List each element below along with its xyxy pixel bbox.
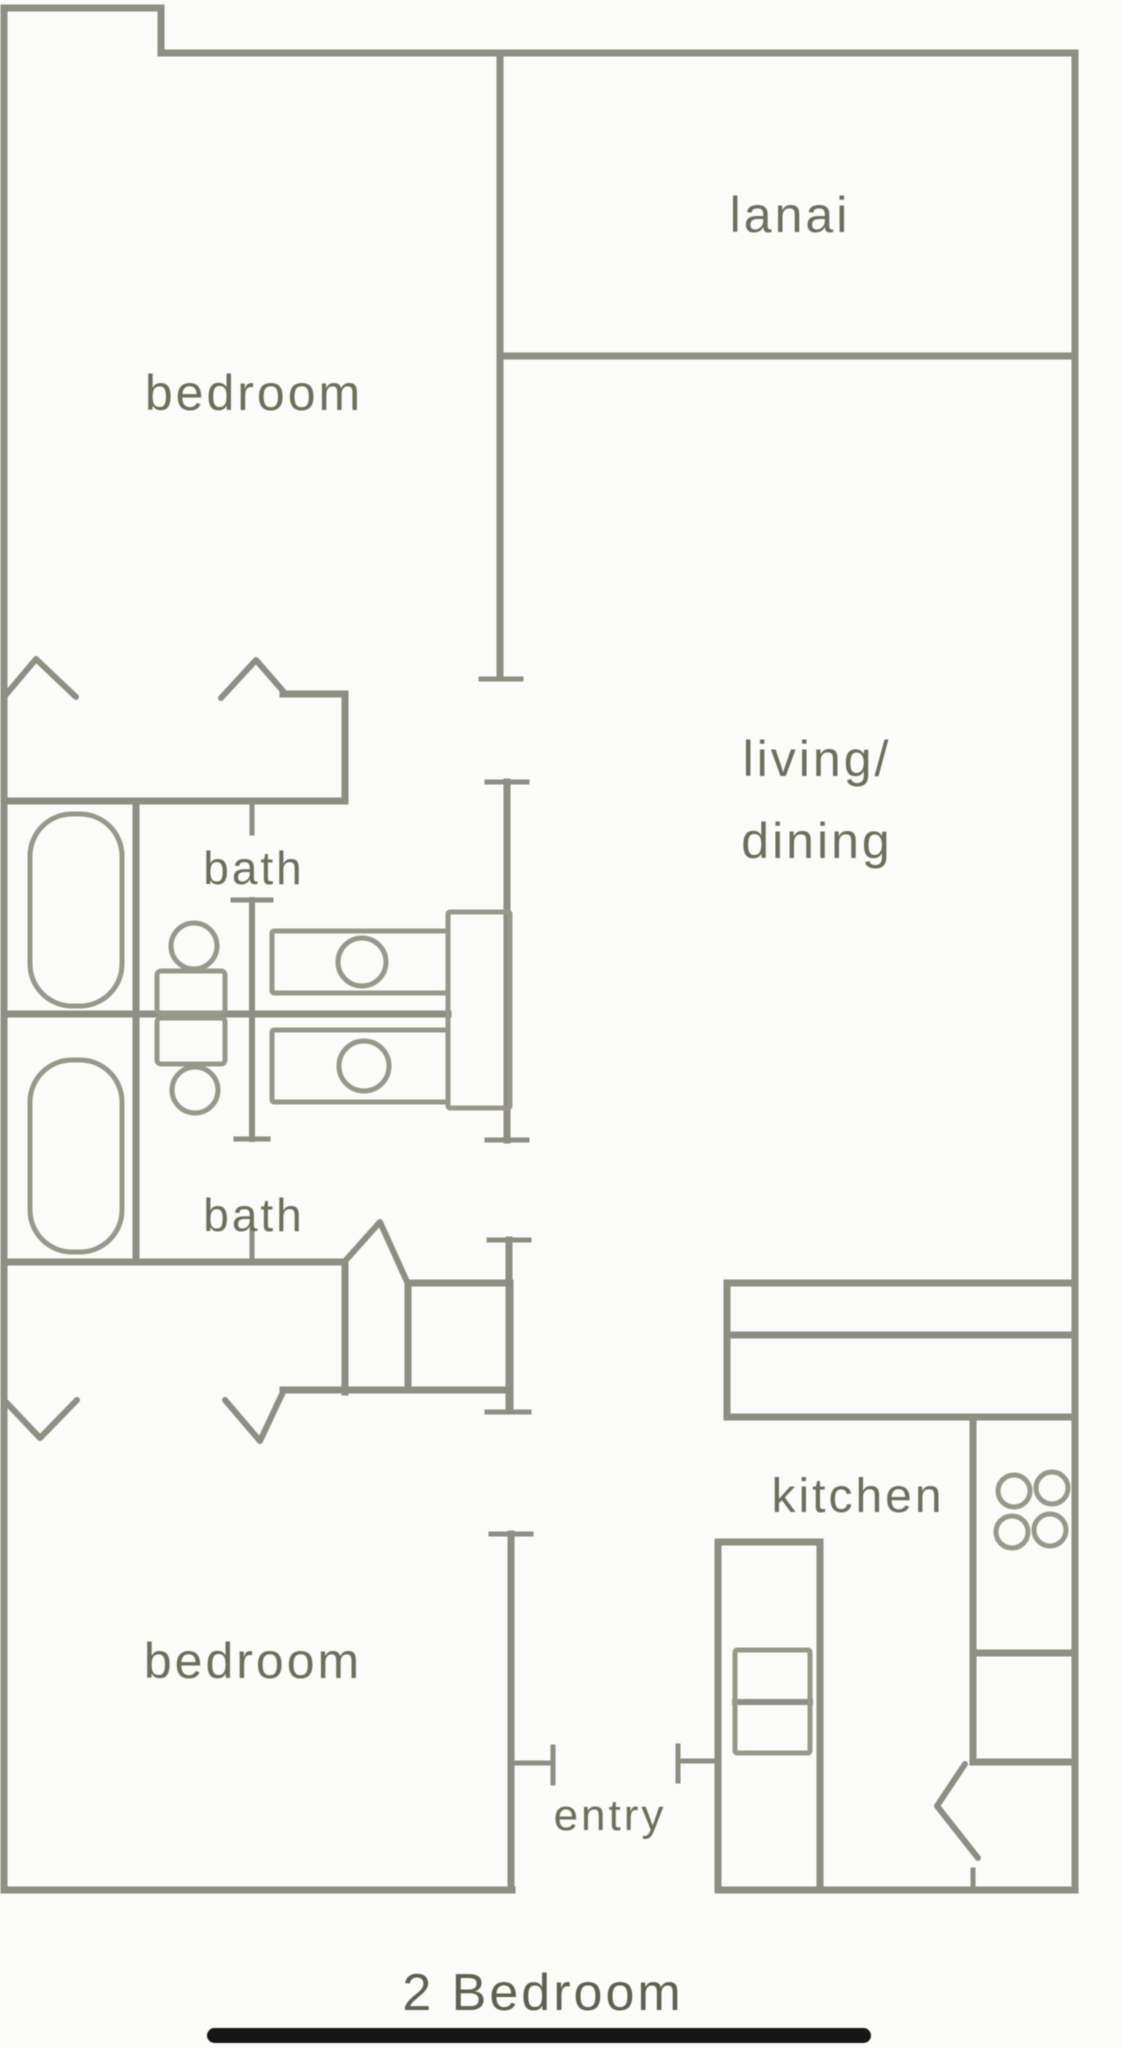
plan-title: 2 Bedroom <box>402 1964 683 2022</box>
label-lanai: lanai <box>730 187 851 243</box>
label-entry: entry <box>554 1791 667 1840</box>
label-kitchen: kitchen <box>771 1470 944 1523</box>
label-bedroom-1: bedroom <box>145 365 363 421</box>
title-underline-bar <box>207 2028 871 2043</box>
label-bath-1: bath <box>203 842 305 894</box>
plan-background <box>0 0 1122 2048</box>
label-bath-2: bath <box>203 1189 305 1241</box>
floorplan-page: lanaibedroomliving/diningbathbathkitchen… <box>0 0 1122 2048</box>
floorplan-layers: lanaibedroomliving/diningbathbathkitchen… <box>0 0 1122 2048</box>
label-living-dining: dining <box>741 813 892 869</box>
label-living-dining: living/ <box>743 731 892 787</box>
label-bedroom-2: bedroom <box>144 1633 362 1689</box>
floorplan-svg: lanaibedroomliving/diningbathbathkitchen… <box>0 0 1122 2048</box>
